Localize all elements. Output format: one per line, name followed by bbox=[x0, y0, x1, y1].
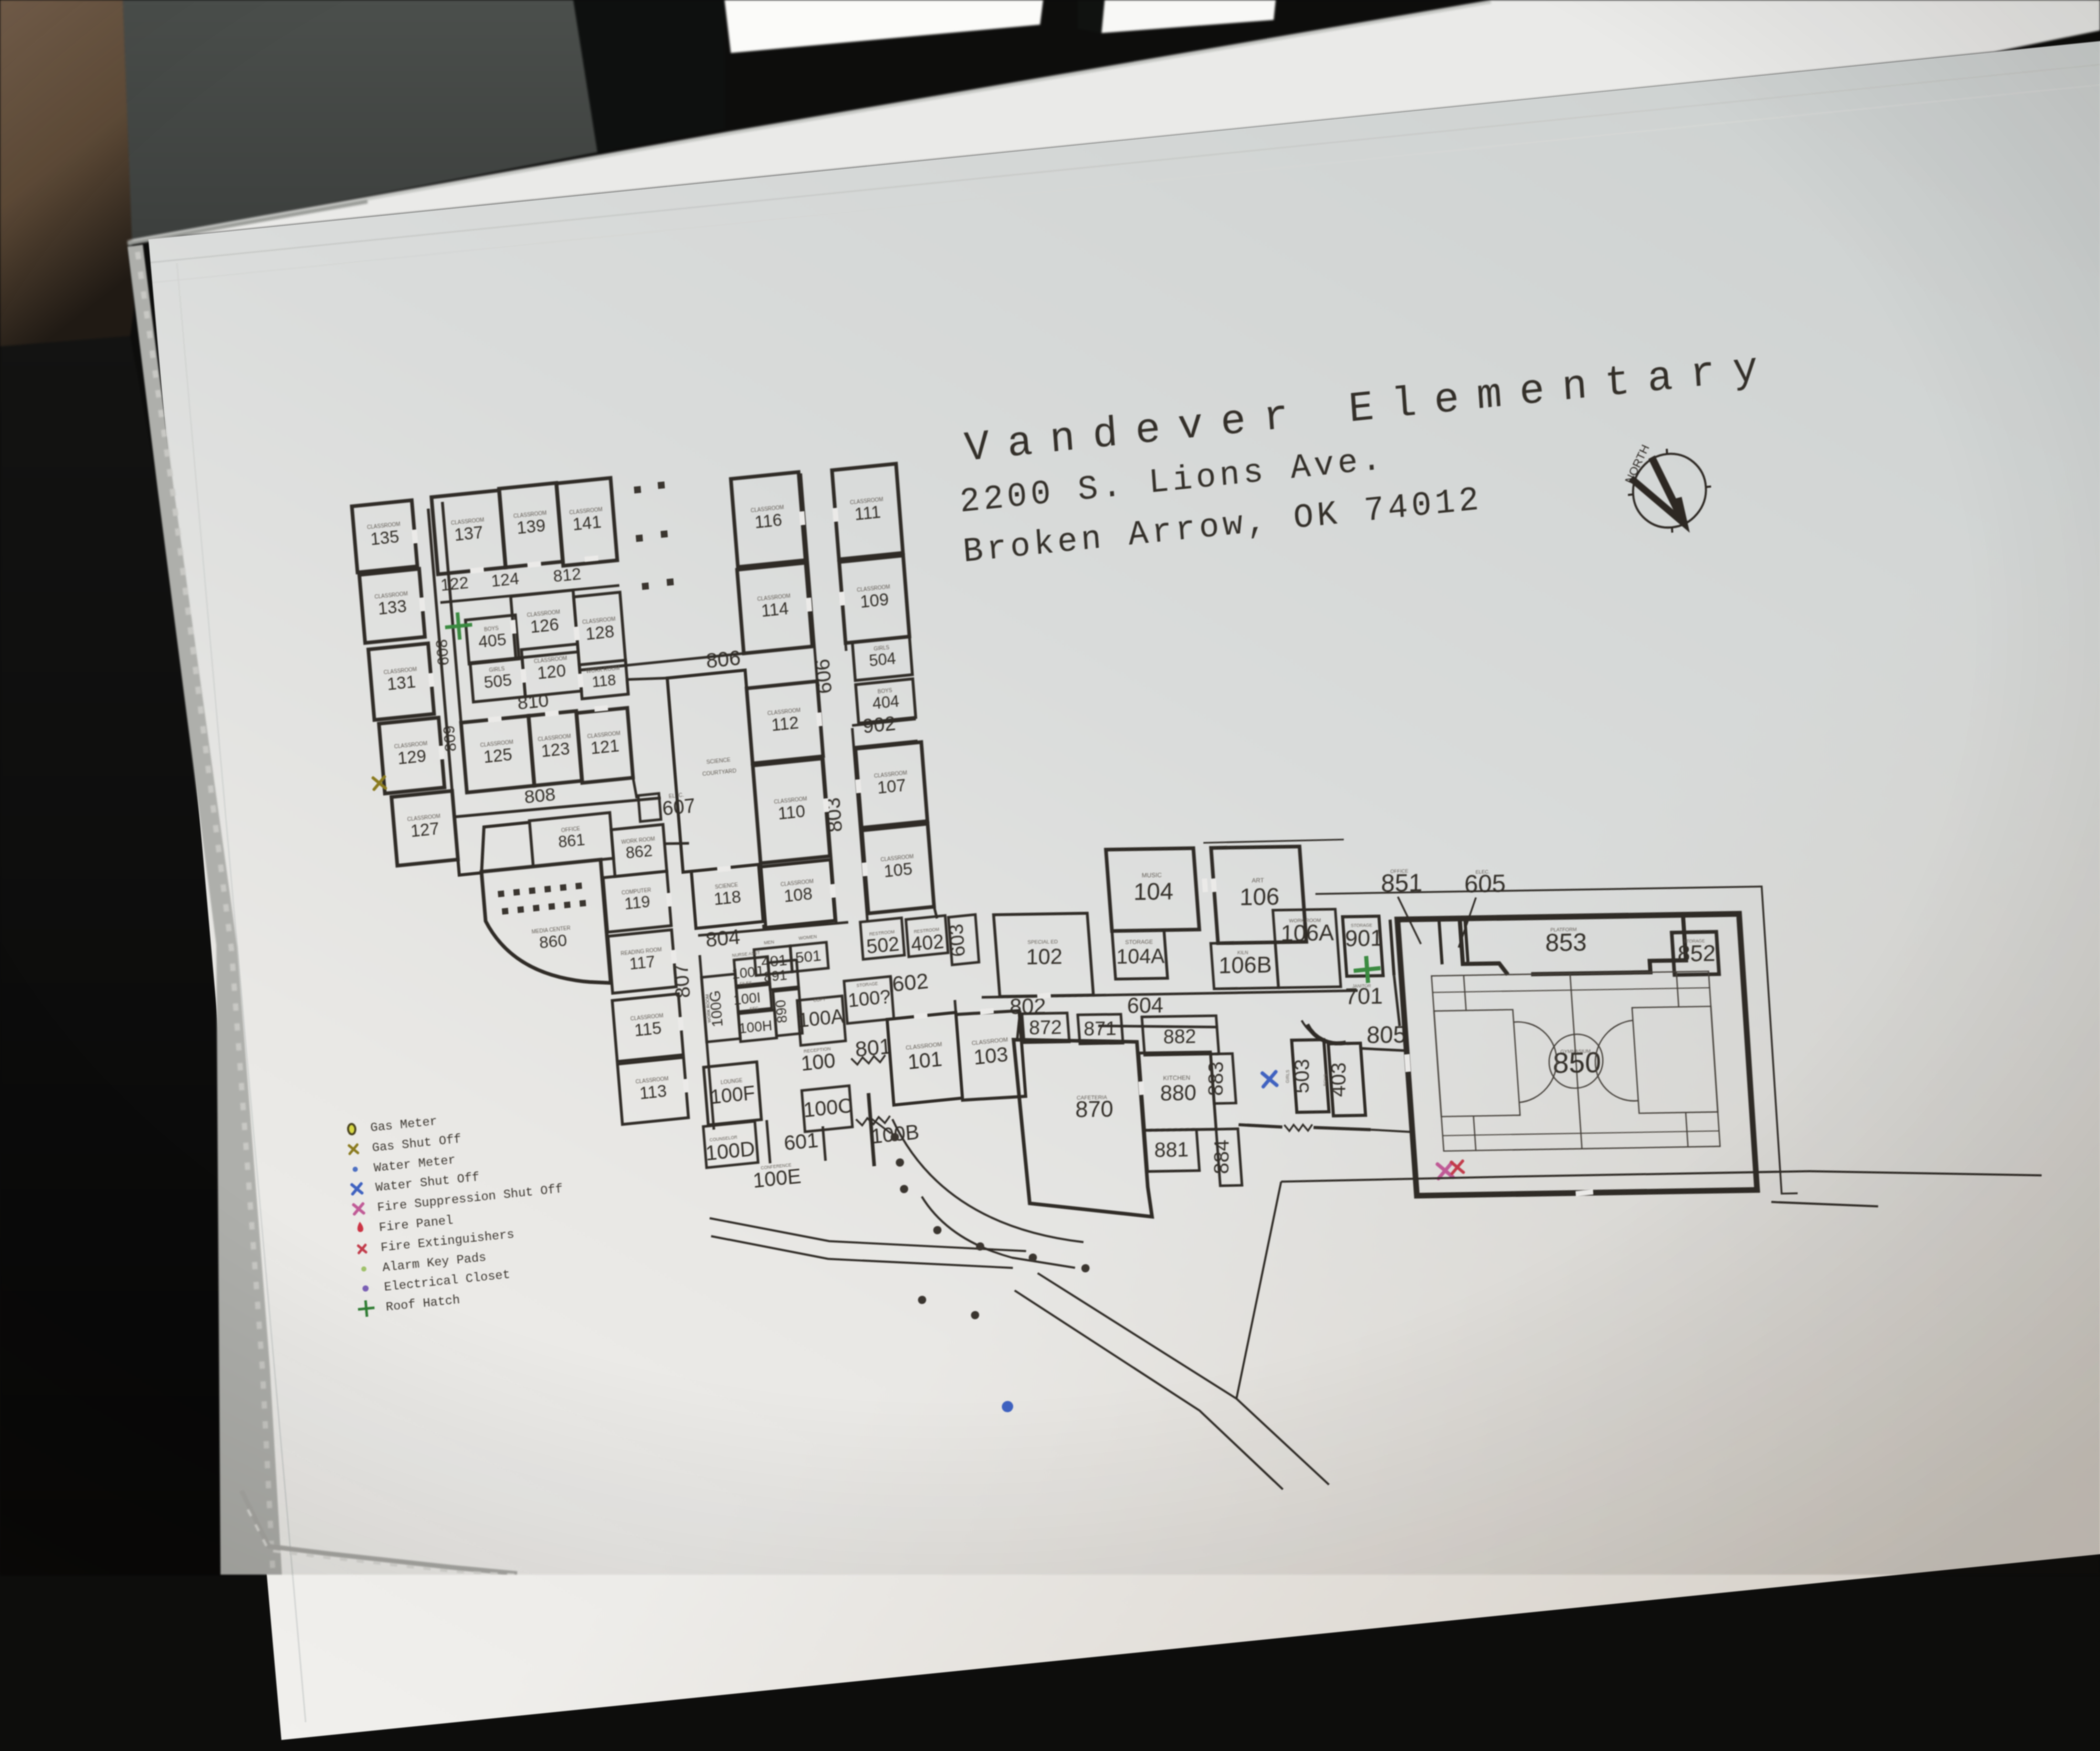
svg-text:870: 870 bbox=[1075, 1096, 1114, 1122]
svg-text:103: 103 bbox=[973, 1042, 1009, 1069]
svg-text:SEC: SEC bbox=[749, 1006, 759, 1012]
svg-text:100E: 100E bbox=[752, 1164, 802, 1193]
svg-text:139: 139 bbox=[516, 516, 547, 538]
svg-text:808: 808 bbox=[523, 783, 556, 807]
svg-text:118: 118 bbox=[591, 671, 616, 691]
svg-text:106B: 106B bbox=[1219, 952, 1272, 978]
svg-text:603: 603 bbox=[945, 923, 970, 958]
svg-text:106: 106 bbox=[1240, 883, 1279, 910]
svg-text:606: 606 bbox=[810, 658, 836, 695]
svg-text:135: 135 bbox=[370, 527, 400, 549]
svg-text:862: 862 bbox=[625, 841, 653, 862]
svg-text:501: 501 bbox=[795, 947, 822, 966]
svg-text:884: 884 bbox=[1210, 1140, 1234, 1174]
svg-text:810: 810 bbox=[517, 689, 550, 713]
svg-text:503: 503 bbox=[1289, 1059, 1314, 1094]
svg-text:104A: 104A bbox=[1116, 944, 1165, 968]
svg-text:701: 701 bbox=[1345, 984, 1383, 1009]
svg-text:502: 502 bbox=[866, 933, 900, 958]
svg-text:804: 804 bbox=[705, 925, 741, 952]
svg-text:602: 602 bbox=[891, 968, 930, 996]
svg-text:128: 128 bbox=[585, 622, 615, 644]
svg-text:109: 109 bbox=[859, 590, 889, 612]
svg-text:100J: 100J bbox=[731, 963, 763, 982]
svg-text:100D: 100D bbox=[705, 1137, 755, 1165]
svg-text:901: 901 bbox=[1345, 925, 1383, 951]
svg-text:860: 860 bbox=[539, 931, 568, 952]
svg-text:404: 404 bbox=[871, 692, 900, 713]
svg-text:100?: 100? bbox=[847, 986, 891, 1011]
svg-text:113: 113 bbox=[639, 1082, 668, 1103]
svg-text:111: 111 bbox=[854, 502, 881, 524]
svg-text:853: 853 bbox=[1545, 929, 1587, 957]
svg-text:114: 114 bbox=[760, 599, 789, 621]
svg-text:100: 100 bbox=[800, 1048, 836, 1075]
svg-text:402: 402 bbox=[910, 931, 945, 956]
svg-text:121: 121 bbox=[590, 736, 619, 758]
svg-text:504: 504 bbox=[868, 649, 897, 670]
svg-text:108: 108 bbox=[783, 884, 813, 906]
svg-text:883: 883 bbox=[1204, 1061, 1228, 1096]
svg-text:880: 880 bbox=[1160, 1080, 1196, 1105]
svg-text:100F: 100F bbox=[709, 1082, 755, 1109]
svg-text:100A: 100A bbox=[797, 1005, 845, 1032]
svg-text:871: 871 bbox=[1084, 1017, 1117, 1040]
svg-text:807: 807 bbox=[668, 963, 695, 999]
svg-text:131: 131 bbox=[386, 672, 417, 694]
svg-text:112: 112 bbox=[771, 713, 800, 735]
svg-text:115: 115 bbox=[634, 1019, 663, 1040]
svg-text:122: 122 bbox=[440, 573, 469, 595]
svg-text:107: 107 bbox=[877, 776, 907, 798]
svg-text:124: 124 bbox=[490, 569, 520, 590]
svg-text:118: 118 bbox=[713, 888, 742, 909]
svg-text:GIRLS: GIRLS bbox=[1285, 1070, 1290, 1083]
svg-text:882: 882 bbox=[1163, 1026, 1196, 1048]
svg-text:812: 812 bbox=[552, 564, 582, 586]
svg-text:608: 608 bbox=[433, 638, 453, 666]
svg-text:129: 129 bbox=[397, 746, 427, 768]
svg-text:405: 405 bbox=[478, 630, 507, 651]
svg-text:110: 110 bbox=[777, 802, 806, 824]
svg-text:100H: 100H bbox=[738, 1017, 773, 1037]
svg-text:881: 881 bbox=[1154, 1137, 1189, 1162]
svg-text:891: 891 bbox=[763, 967, 788, 985]
svg-text:102: 102 bbox=[1026, 944, 1063, 969]
svg-text:126: 126 bbox=[530, 615, 560, 637]
svg-text:101: 101 bbox=[907, 1047, 943, 1073]
svg-text:127: 127 bbox=[410, 819, 440, 841]
svg-text:403: 403 bbox=[1326, 1062, 1350, 1098]
svg-text:890: 890 bbox=[772, 999, 790, 1024]
svg-text:117: 117 bbox=[629, 953, 656, 973]
svg-text:100C: 100C bbox=[802, 1093, 853, 1122]
svg-text:116: 116 bbox=[754, 510, 783, 532]
svg-text:806: 806 bbox=[705, 646, 742, 673]
svg-text:852: 852 bbox=[1677, 941, 1716, 966]
svg-text:141: 141 bbox=[572, 513, 602, 535]
svg-text:105: 105 bbox=[883, 859, 913, 881]
svg-text:119: 119 bbox=[624, 893, 651, 913]
svg-text:MEN: MEN bbox=[764, 939, 774, 945]
svg-text:137: 137 bbox=[454, 523, 484, 545]
svg-text:104: 104 bbox=[1133, 878, 1173, 905]
svg-text:872: 872 bbox=[1029, 1016, 1062, 1039]
svg-text:125: 125 bbox=[483, 745, 513, 767]
svg-text:123: 123 bbox=[540, 739, 570, 761]
svg-text:861: 861 bbox=[558, 830, 586, 851]
svg-text:BOYS: BOYS bbox=[1322, 1074, 1328, 1087]
svg-text:505: 505 bbox=[483, 670, 512, 692]
svg-text:604: 604 bbox=[1127, 993, 1164, 1018]
svg-text:850: 850 bbox=[1552, 1046, 1601, 1079]
svg-text:106A: 106A bbox=[1280, 920, 1334, 946]
svg-text:133: 133 bbox=[377, 597, 407, 619]
svg-text:605: 605 bbox=[1464, 870, 1506, 898]
svg-text:120: 120 bbox=[537, 661, 566, 683]
